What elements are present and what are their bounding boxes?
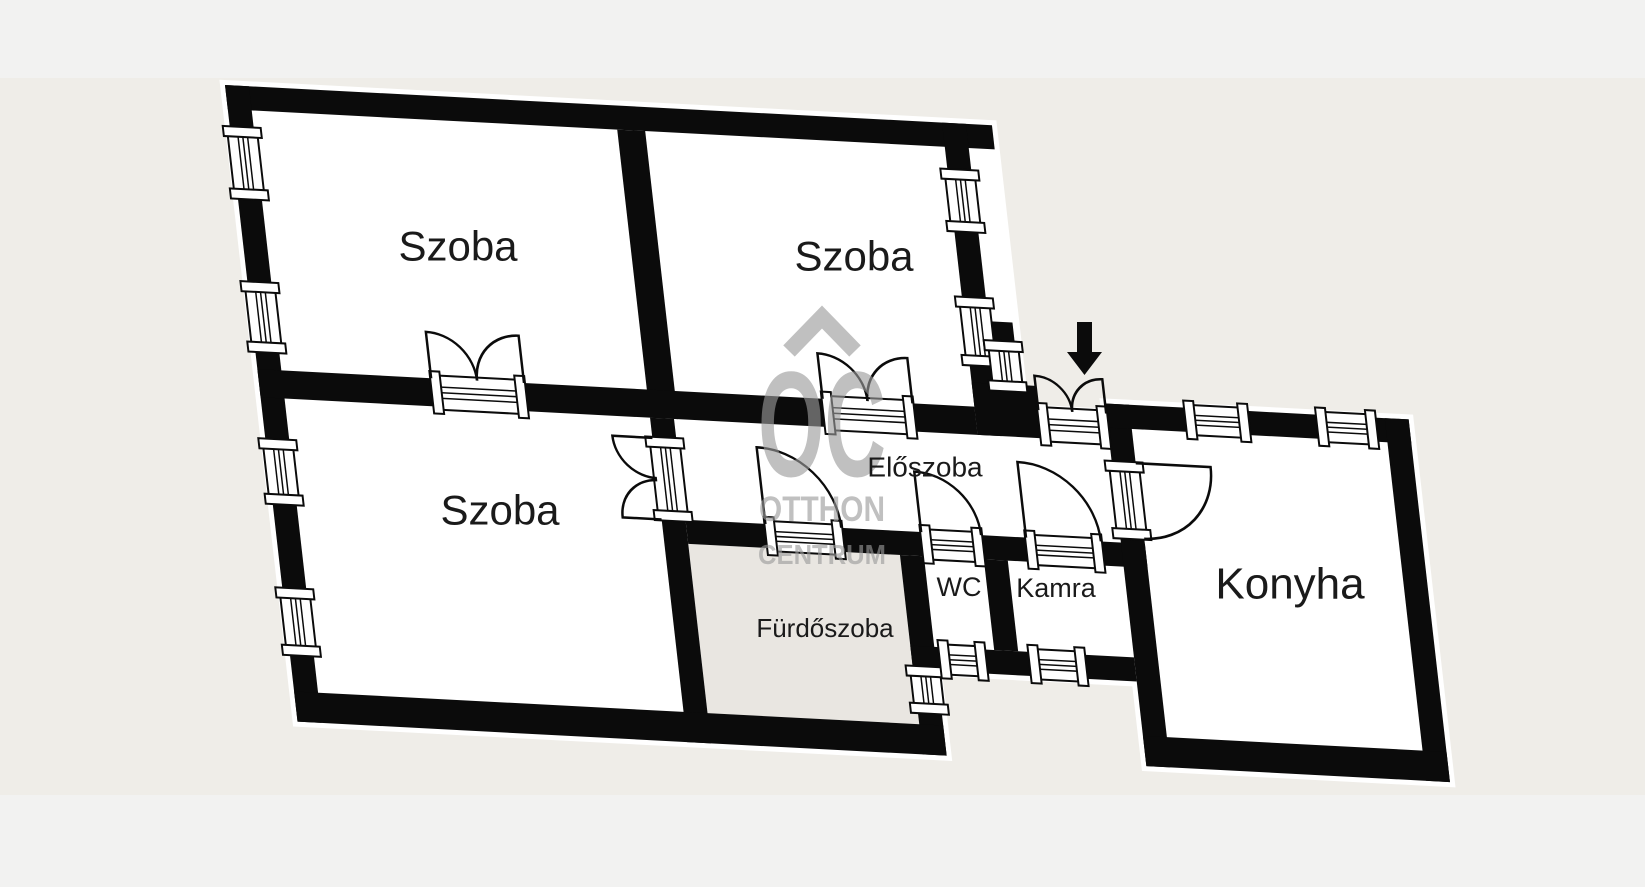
door-frame (1036, 403, 1111, 449)
window-frame (1315, 407, 1379, 448)
window-frame (940, 169, 985, 233)
window-frame-part (258, 438, 297, 450)
room-label-szoba-top-left: Szoba (398, 223, 518, 270)
wall-segment (1105, 403, 1188, 431)
window-frame-part (906, 665, 945, 677)
window-frame-part (240, 281, 279, 293)
window-frame-part (247, 342, 286, 354)
window-frame-part (984, 340, 1023, 352)
window-frame-part (265, 494, 304, 506)
wall-segment (1084, 655, 1137, 682)
floorplan-page: OC OTTHON CENTRUM Szoba Szoba Szoba Elős… (0, 0, 1645, 887)
wall-segment (1247, 411, 1320, 439)
watermark-line-otthon: OTTHON (759, 490, 885, 529)
window-frame (1027, 645, 1088, 686)
watermark-line-centrum: CENTRUM (758, 539, 886, 570)
room-label-eloszoba: Előszoba (867, 452, 983, 483)
window-frame-part (910, 703, 949, 715)
window-frame (1183, 401, 1251, 443)
door-frame (1024, 530, 1105, 572)
window-frame (937, 640, 988, 681)
room-label-szoba-top-right: Szoba (794, 233, 914, 280)
room-label-furdoszoba: Fürdőszoba (756, 613, 894, 643)
wall-segment (984, 650, 1032, 677)
window-frame (984, 340, 1028, 392)
room-label-szoba-bottom-left: Szoba (440, 487, 560, 534)
wall-segment (225, 85, 254, 129)
watermark-monogram: OC (758, 340, 886, 508)
wall-segment (912, 403, 977, 434)
window-frame-part (946, 221, 985, 233)
room-label-wc: WC (937, 572, 982, 602)
room-label-kamra: Kamra (1016, 573, 1097, 603)
window-frame-part (282, 645, 321, 657)
window-frame-part (230, 188, 269, 200)
window-frame-part (988, 380, 1027, 392)
wall-segment (685, 520, 768, 548)
window-frame-part (275, 587, 314, 599)
window-frame-part (940, 169, 979, 181)
window-frame-part (955, 296, 994, 308)
room-label-konyha: Konyha (1215, 560, 1365, 609)
window-frame-part (223, 126, 262, 138)
wall-segment (650, 418, 676, 439)
floor-plan-image: OC OTTHON CENTRUM Szoba Szoba Szoba Elős… (0, 0, 1645, 887)
door-frame (919, 525, 985, 567)
wall-segment (981, 535, 1029, 562)
door-frame (429, 371, 529, 418)
